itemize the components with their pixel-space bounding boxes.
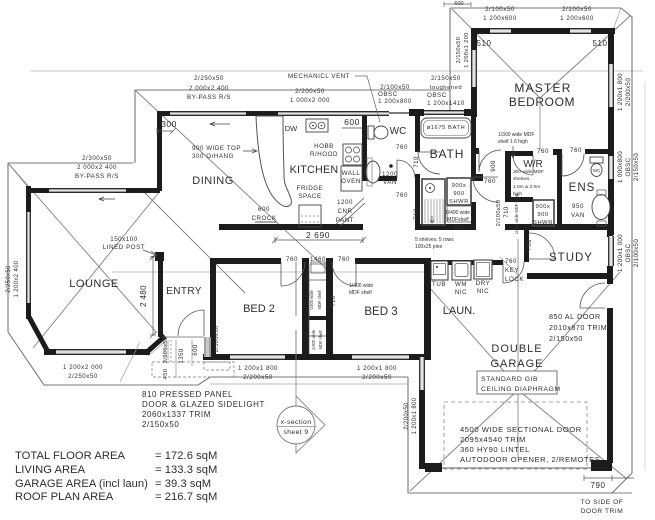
svg-text:MDF shelf: MDF shelf [318, 330, 323, 350]
svg-text:LIVING AREA: LIVING AREA [15, 464, 86, 476]
svg-text:DRY: DRY [476, 280, 491, 287]
svg-text:2/250x50: 2/250x50 [68, 373, 98, 380]
svg-text:DOUBLE: DOUBLE [491, 343, 542, 355]
svg-text:760: 760 [338, 256, 350, 263]
svg-text:1 200x2 000: 1 200x2 000 [63, 364, 103, 371]
svg-text:790: 790 [591, 481, 606, 490]
svg-text:LOUNGE: LOUNGE [69, 278, 118, 290]
svg-text:2/150x50: 2/150x50 [549, 334, 583, 343]
svg-text:DOOR TRIM: DOOR TRIM [581, 508, 624, 515]
svg-text:300 wide MDF: 300 wide MDF [513, 169, 544, 175]
svg-text:2 000x2 400: 2 000x2 400 [77, 164, 117, 171]
svg-text:GARAGE AREA (incl laun): GARAGE AREA (incl laun) [15, 478, 148, 490]
svg-text:NIC: NIC [477, 288, 489, 295]
svg-text:2 480: 2 480 [139, 285, 148, 307]
svg-text:1.0m & 2.0m: 1.0m & 2.0m [513, 184, 540, 190]
svg-text:1 200x600: 1 200x600 [483, 15, 517, 22]
svg-text:2/300x50: 2/300x50 [163, 337, 169, 364]
svg-text:MDF shelf: MDF shelf [317, 290, 322, 310]
svg-text:1 200x2 400: 1 200x2 400 [14, 260, 20, 297]
svg-text:BATH: BATH [430, 147, 465, 161]
svg-text:2/150x50: 2/150x50 [633, 153, 640, 181]
svg-text:BED 2: BED 2 [243, 303, 275, 315]
svg-text:HOBB: HOBB [314, 143, 334, 150]
svg-text:LOCK: LOCK [505, 276, 524, 283]
svg-text:WC: WC [390, 126, 407, 137]
svg-text:DW: DW [285, 124, 298, 133]
svg-text:710: 710 [453, 224, 465, 231]
svg-text:1 200x1 000: 1 200x1 000 [617, 234, 624, 272]
svg-text:2010x870 TRIM: 2010x870 TRIM [549, 323, 607, 332]
svg-text:shelves: shelves [513, 176, 530, 182]
svg-text:1 200x800: 1 200x800 [378, 98, 412, 105]
svg-text:WALL: WALL [342, 170, 361, 177]
svg-text:TO SIDE OF: TO SIDE OF [581, 499, 624, 506]
svg-text:1 200x600: 1 200x600 [560, 15, 594, 22]
svg-text:MDFshelf: MDFshelf [447, 217, 469, 223]
svg-text:R/HOOD: R/HOOD [310, 151, 338, 158]
svg-text:2/100x50: 2/100x50 [633, 239, 640, 267]
svg-text:100x25 pine: 100x25 pine [415, 244, 442, 250]
svg-text:OBSC: OBSC [625, 243, 632, 262]
svg-text:450: 450 [163, 369, 169, 380]
svg-text:BEDROOM: BEDROOM [509, 95, 575, 109]
svg-text:2/100x50: 2/100x50 [562, 6, 592, 13]
svg-text:1 200x1 800: 1 200x1 800 [357, 365, 397, 372]
svg-text:1/300 wide: 1/300 wide [311, 329, 316, 350]
svg-text:600: 600 [344, 117, 360, 127]
svg-text:2/200x50: 2/200x50 [404, 402, 410, 430]
svg-text:KITCHEN: KITCHEN [290, 164, 339, 176]
svg-text:sheet 9: sheet 9 [283, 429, 308, 436]
svg-text:150x100: 150x100 [110, 236, 138, 243]
svg-text:710: 710 [331, 295, 337, 306]
svg-text:810 PRESSED PANEL: 810 PRESSED PANEL [142, 390, 233, 399]
svg-text:2/300x50: 2/300x50 [82, 155, 112, 162]
svg-text:toughened: toughened [430, 85, 462, 91]
svg-text:1 200x1410: 1 200x1410 [427, 100, 465, 107]
svg-text:2/200x50: 2/200x50 [362, 374, 392, 381]
svg-text:900x: 900x [452, 183, 467, 189]
svg-text:SHWR: SHWR [533, 220, 553, 226]
svg-text:2/500x50: 2/500x50 [214, 326, 220, 353]
svg-text:1/400 wide MDF shelf: 1/400 wide MDF shelf [514, 193, 519, 234]
svg-text:FRIDGE: FRIDGE [297, 185, 324, 192]
svg-text:MASTER: MASTER [514, 81, 571, 95]
svg-text:2 000x2 400: 2 000x2 400 [189, 85, 229, 92]
svg-text:BY-PASS R/S: BY-PASS R/S [75, 173, 119, 180]
svg-text:900: 900 [453, 191, 464, 197]
svg-text:CNR: CNR [337, 208, 352, 215]
svg-text:1200: 1200 [337, 199, 353, 206]
svg-text:760: 760 [526, 239, 533, 251]
svg-text:CEILING DIAPHRAGM: CEILING DIAPHRAGM [481, 386, 561, 393]
svg-text:2060x1337 TRIM: 2060x1337 TRIM [142, 410, 211, 419]
svg-text:2/200x50: 2/200x50 [295, 88, 325, 95]
svg-text:SPACE: SPACE [298, 193, 321, 200]
svg-text:TUB: TUB [432, 281, 446, 288]
svg-text:OBSC: OBSC [427, 92, 447, 99]
svg-text:TOTAL FLOOR AREA: TOTAL FLOOR AREA [15, 450, 125, 462]
svg-text:VAN: VAN [571, 212, 585, 219]
svg-text:OBSC: OBSC [625, 157, 632, 176]
svg-text:760: 760 [286, 256, 298, 263]
svg-text:760: 760 [570, 147, 582, 154]
svg-text:LINED POST: LINED POST [103, 244, 145, 251]
svg-text:ENTRY: ENTRY [166, 286, 202, 297]
svg-text:GARAGE: GARAGE [490, 358, 543, 370]
svg-text:ENS: ENS [569, 182, 596, 194]
svg-text:1/400 wide: 1/400 wide [349, 283, 373, 289]
svg-text:MECHANICL VENT: MECHANICL VENT [288, 73, 350, 80]
svg-text:1350: 1350 [178, 348, 185, 363]
svg-text:760: 760 [396, 192, 408, 199]
svg-text:2095x4540 TRIM: 2095x4540 TRIM [460, 435, 526, 444]
svg-text:2/150x50: 2/150x50 [456, 37, 462, 64]
svg-text:KEY: KEY [505, 267, 519, 274]
svg-text:BY-PASS R/S: BY-PASS R/S [187, 94, 231, 101]
svg-text:850 AL DOOR: 850 AL DOOR [549, 312, 601, 321]
svg-text:OVEN: OVEN [341, 178, 361, 185]
svg-text:W/R: W/R [523, 159, 542, 170]
svg-text:WC: WC [593, 168, 601, 173]
svg-text:PANT: PANT [336, 217, 354, 224]
svg-text:= 133.3 sqM: = 133.3 sqM [155, 464, 217, 476]
svg-text:2/200x50: 2/200x50 [625, 78, 632, 106]
svg-text:710: 710 [413, 208, 420, 220]
svg-text:1 000x800: 1 000x800 [617, 151, 624, 183]
svg-text:900: 900 [490, 160, 497, 172]
svg-text:710: 710 [503, 206, 510, 218]
svg-text:760: 760 [396, 144, 408, 151]
svg-text:x-section: x-section [281, 419, 312, 426]
svg-text:STANDARD GIB: STANDARD GIB [481, 376, 538, 383]
svg-text:360 HY90 LINTEL: 360 HY90 LINTEL [460, 445, 530, 454]
svg-text:2/100x50: 2/100x50 [485, 6, 515, 13]
svg-text:CROCK: CROCK [251, 215, 276, 222]
svg-text:OBSC: OBSC [378, 91, 398, 98]
svg-text:760: 760 [537, 148, 549, 155]
svg-text:1 000x2 000: 1 000x2 000 [290, 97, 330, 104]
svg-text:1/300 wide MDF: 1/300 wide MDF [498, 132, 534, 138]
svg-text:DINING: DINING [192, 175, 234, 187]
svg-text:1200: 1200 [382, 171, 398, 178]
svg-text:1 200x1 800: 1 200x1 800 [412, 397, 418, 434]
svg-text:1 200x1 800: 1 200x1 800 [617, 73, 624, 111]
svg-text:1460: 1460 [310, 256, 326, 263]
svg-text:900x: 900x [536, 204, 551, 210]
svg-text:2/100x50: 2/100x50 [380, 84, 410, 91]
svg-text:300: 300 [161, 119, 177, 129]
svg-text:ROOF PLAN AREA: ROOF PLAN AREA [15, 491, 114, 503]
svg-text:2/150x50: 2/150x50 [142, 420, 179, 429]
svg-text:SHWR: SHWR [449, 199, 469, 205]
svg-text:600: 600 [192, 344, 199, 356]
svg-text:760: 760 [484, 178, 496, 185]
svg-text:NIC: NIC [455, 289, 467, 296]
svg-text:shelf 1.6 high: shelf 1.6 high [498, 139, 528, 145]
svg-text:2/150x50: 2/150x50 [431, 75, 461, 82]
svg-text:600: 600 [258, 206, 270, 213]
svg-text:= 216.7 sqM: = 216.7 sqM [155, 491, 217, 503]
svg-text:2 690: 2 690 [306, 230, 330, 240]
svg-text:⌀1675 BATH: ⌀1675 BATH [427, 125, 466, 131]
svg-text:1 200x1 800: 1 200x1 800 [238, 365, 278, 372]
svg-text:900 WIDE TOP: 900 WIDE TOP [192, 145, 241, 152]
svg-text:= 172.6 sqM: = 172.6 sqM [155, 450, 217, 462]
svg-text:2/100x50: 2/100x50 [496, 200, 502, 227]
svg-text:1 200x1 200: 1 200x1 200 [464, 32, 470, 68]
svg-text:DOOR & GLAZED SIDELIGHT: DOOR & GLAZED SIDELIGHT [142, 400, 265, 409]
svg-text:STUDY: STUDY [549, 252, 593, 264]
svg-text:510: 510 [593, 39, 608, 48]
svg-text:900: 900 [537, 212, 548, 218]
svg-text:0/400 wide: 0/400 wide [446, 210, 470, 216]
svg-text:2/250x50: 2/250x50 [194, 75, 224, 82]
svg-text:VAN: VAN [383, 179, 397, 186]
svg-text:710: 710 [303, 331, 309, 342]
svg-text:LAUN.: LAUN. [443, 305, 475, 317]
svg-text:= 39.3 sqM: = 39.3 sqM [155, 478, 211, 490]
svg-text:V300 wide: V300 wide [309, 290, 314, 310]
svg-text:MDF shelf: MDF shelf [349, 290, 372, 296]
svg-text:710: 710 [413, 156, 420, 168]
svg-text:600: 600 [454, 1, 463, 7]
svg-text:510: 510 [477, 39, 492, 48]
svg-text:2/200x50: 2/200x50 [243, 374, 273, 381]
svg-text:4500 WIDE SECTIONAL DOOR: 4500 WIDE SECTIONAL DOOR [460, 425, 582, 434]
svg-text:760: 760 [505, 258, 517, 265]
svg-text:300 O/HANG: 300 O/HANG [192, 153, 234, 160]
svg-text:2/250x50: 2/250x50 [6, 265, 12, 293]
svg-text:950: 950 [572, 203, 584, 210]
svg-text:5 shelves, 5 rows: 5 shelves, 5 rows [415, 237, 454, 243]
svg-text:WM: WM [455, 281, 467, 288]
svg-text:BED 3: BED 3 [364, 306, 397, 318]
svg-text:AUTODOOR OPENER, 2/REMOTES: AUTODOOR OPENER, 2/REMOTES [460, 455, 600, 464]
